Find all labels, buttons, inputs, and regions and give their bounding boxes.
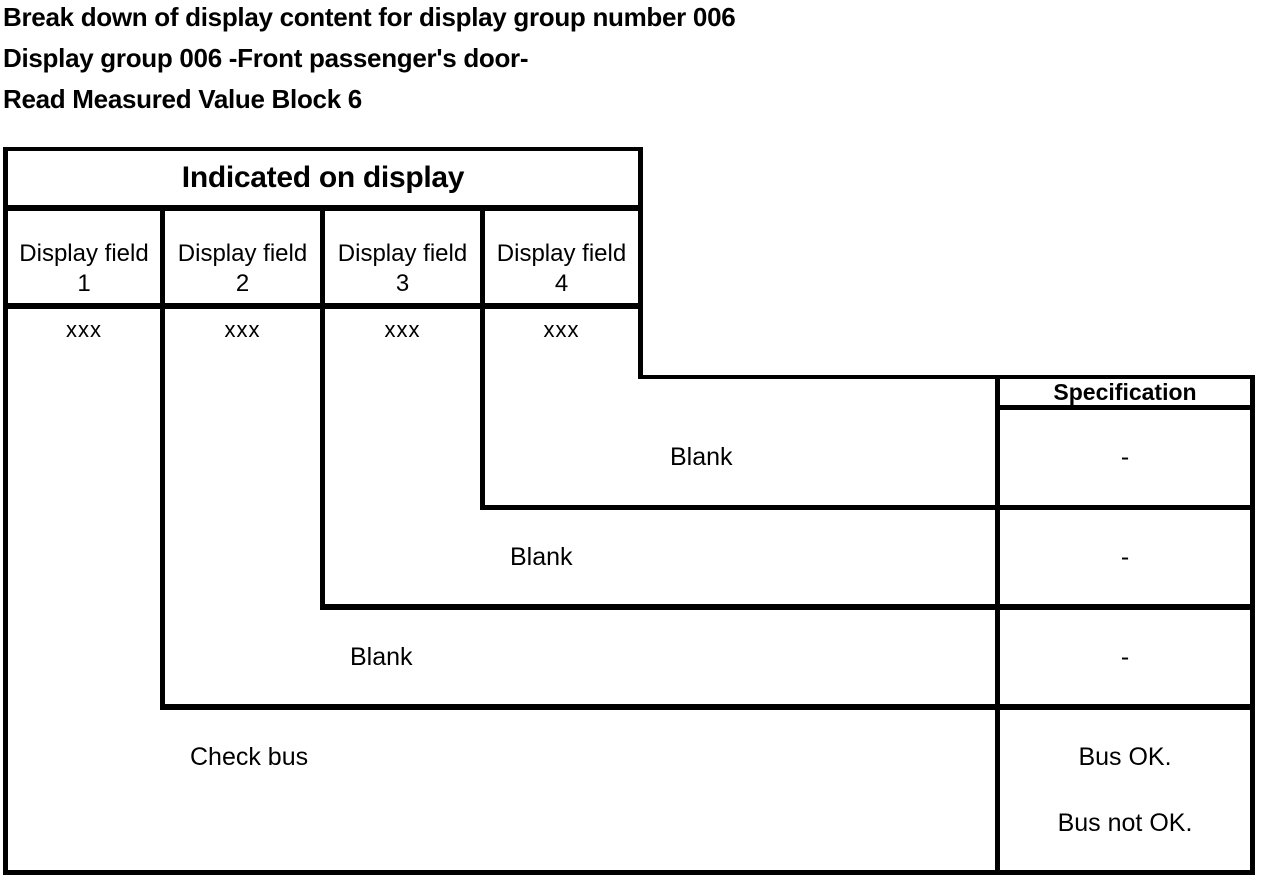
row-field3-specification: -: [1000, 510, 1250, 604]
indicated-on-display-header: Indicated on display: [3, 152, 643, 204]
display-field-1-number: 1: [77, 269, 90, 299]
display-field-3-label: Display field: [338, 239, 467, 269]
row-field1-specification: Bus OK. Bus not OK.: [1000, 710, 1250, 870]
display-field-2-number: 2: [236, 269, 249, 299]
row-field1-content: Check bus: [190, 710, 308, 804]
spec-bus-ok: Bus OK.: [1078, 724, 1171, 790]
spec-column-border-right: [1250, 375, 1255, 875]
display-field-4-label: Display field: [497, 239, 626, 269]
display-field-3-header: Display field 3: [325, 211, 480, 303]
display-field-2-label: Display field: [178, 239, 307, 269]
page-title: Break down of display content for displa…: [3, 0, 735, 120]
display-field-1-header: Display field 1: [8, 211, 160, 303]
display-field-1-value: xxx: [8, 309, 160, 351]
display-field-4-header: Display field 4: [485, 211, 638, 303]
display-field-4-value: xxx: [485, 309, 638, 351]
row-field2-content: Blank: [350, 610, 413, 704]
display-field-3-number: 3: [396, 269, 409, 299]
row-field4-content: Blank: [670, 410, 733, 505]
row-field4-specification: -: [1000, 410, 1250, 505]
title-line-2: Display group 006 -Front passenger's doo…: [3, 38, 735, 79]
row-field2-specification: -: [1000, 610, 1250, 704]
manual-page: Break down of display content for displa…: [0, 0, 1264, 880]
title-line-1: Break down of display content for displa…: [3, 0, 735, 38]
display-field-4-number: 4: [555, 269, 568, 299]
row-field3-content: Blank: [510, 510, 573, 604]
table-border-bottom: [3, 870, 1255, 875]
table-border-top: [3, 147, 643, 151]
display-field-1-label: Display field: [19, 239, 148, 269]
specification-header: Specification: [1000, 379, 1250, 405]
display-field-2-value: xxx: [165, 309, 320, 351]
display-field-2-header: Display field 2: [165, 211, 320, 303]
display-field-3-value: xxx: [325, 309, 480, 351]
spec-bus-not-ok: Bus not OK.: [1058, 790, 1193, 856]
title-line-3: Read Measured Value Block 6: [3, 79, 735, 120]
